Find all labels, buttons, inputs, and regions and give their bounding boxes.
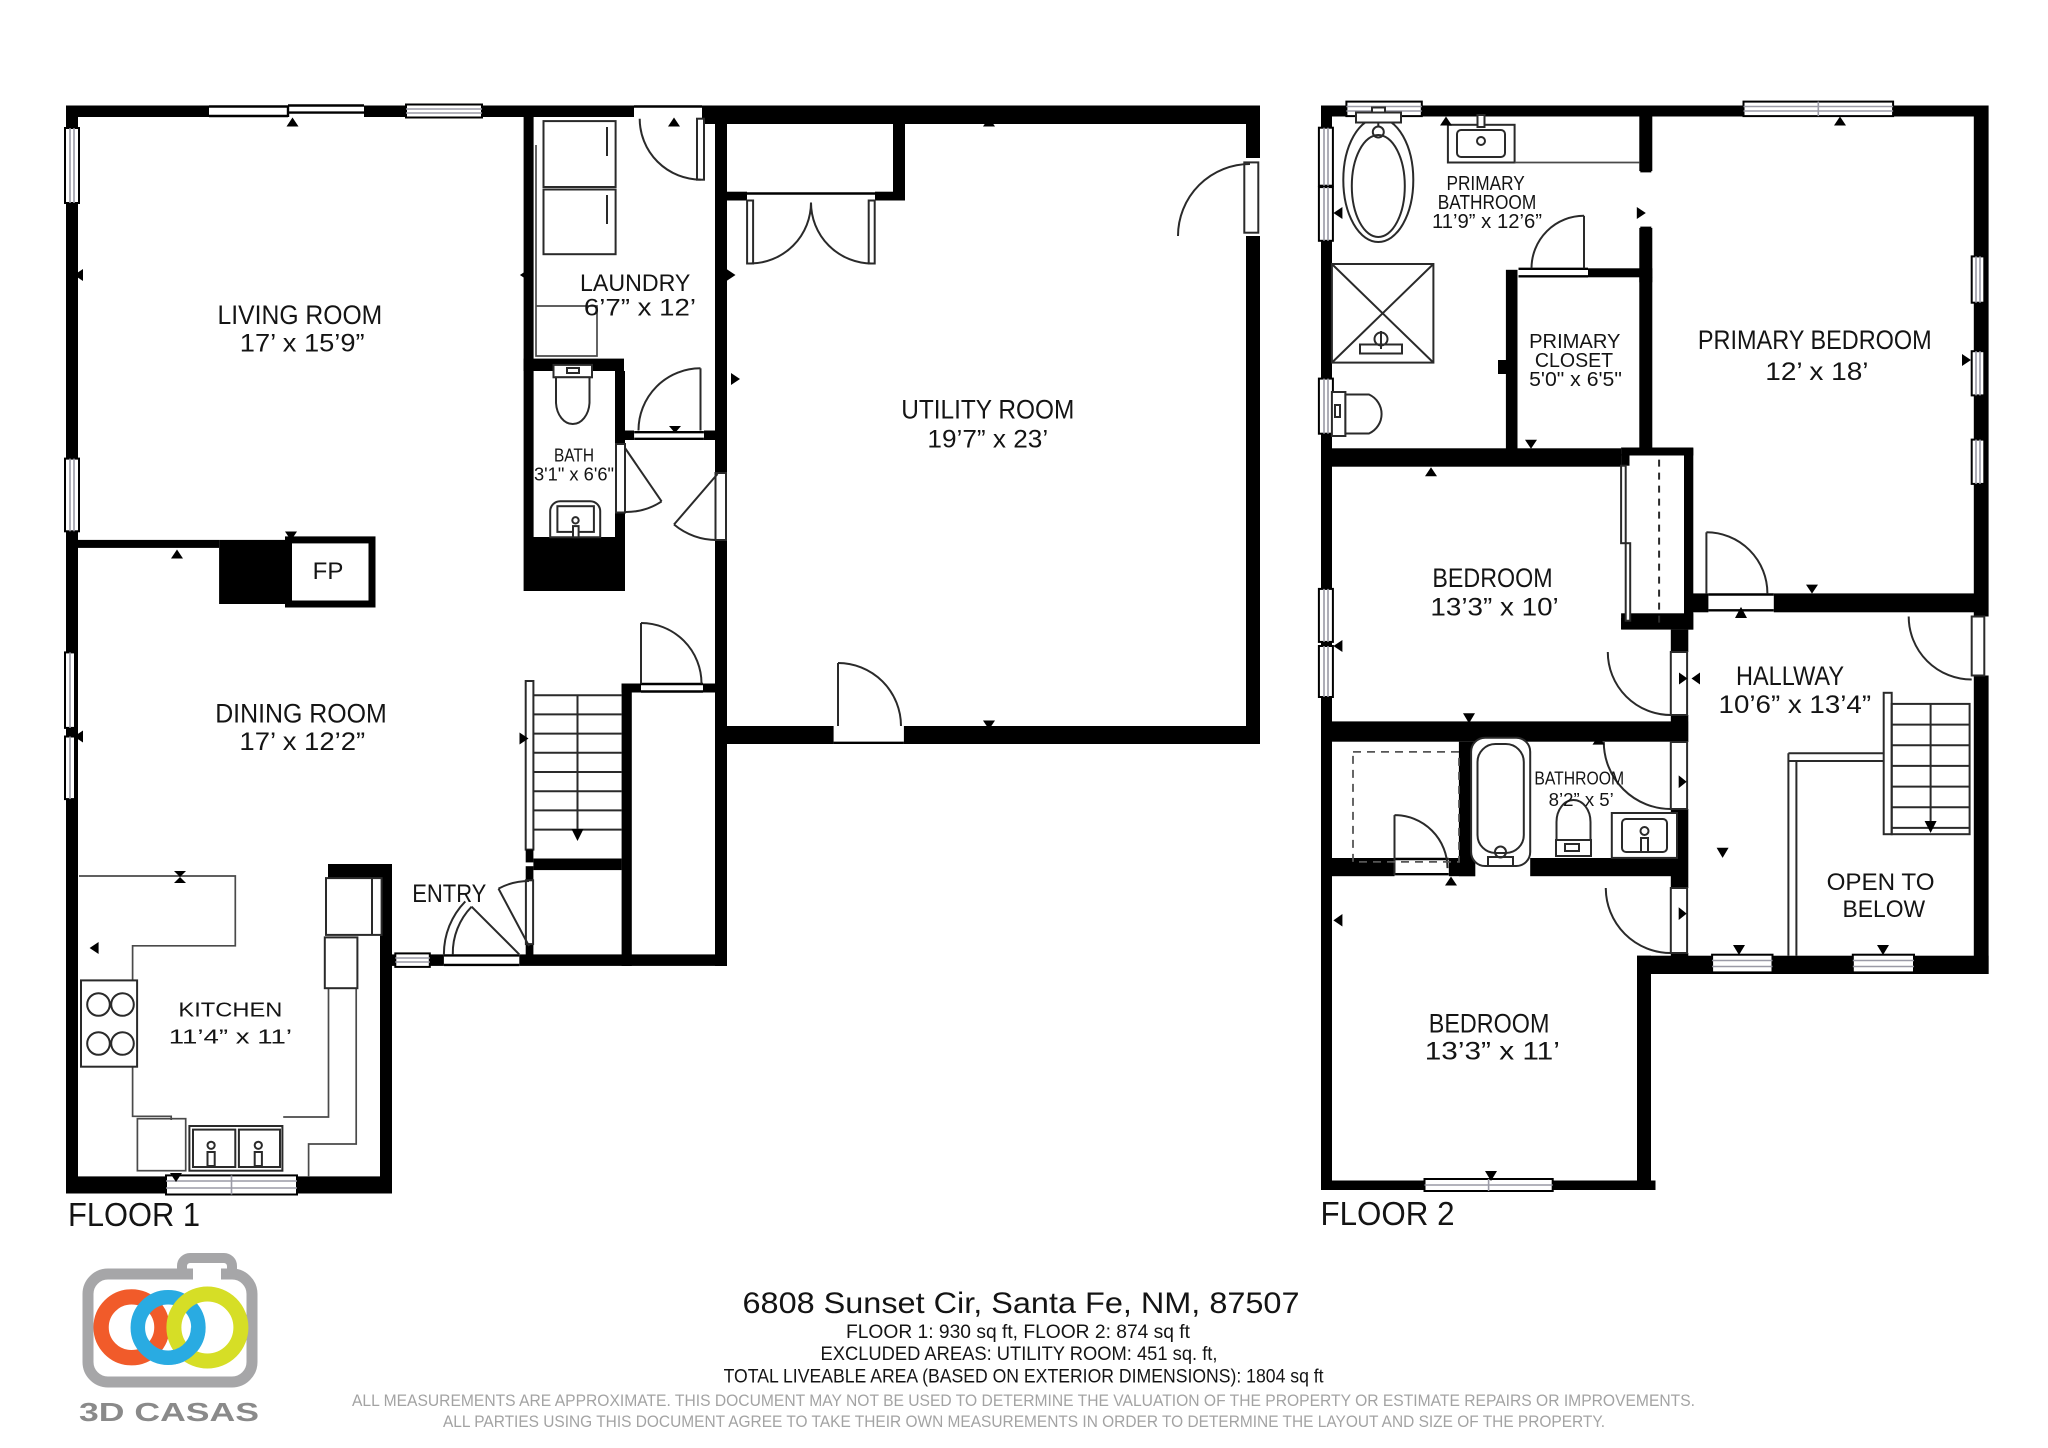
- svg-text:PRIMARY BEDROOM: PRIMARY BEDROOM: [1698, 325, 1932, 355]
- svg-text:FLOOR 1: FLOOR 1: [68, 1196, 200, 1233]
- svg-text:13’3” x 11’: 13’3” x 11’: [1425, 1037, 1560, 1065]
- svg-text:10’6” x 13’4”: 10’6” x 13’4”: [1719, 691, 1872, 719]
- svg-text:12’ x 18’: 12’ x 18’: [1765, 358, 1868, 386]
- svg-text:13’3” x 10’: 13’3” x 10’: [1430, 593, 1558, 621]
- svg-text:17’ x 12’2”: 17’ x 12’2”: [239, 728, 365, 756]
- svg-text:BELOW: BELOW: [1842, 896, 1925, 923]
- svg-text:EXCLUDED AREAS: UTILITY ROOM:: EXCLUDED AREAS: UTILITY ROOM: 451 sq. ft…: [821, 1344, 1218, 1365]
- svg-text:FLOOR 2: FLOOR 2: [1321, 1195, 1455, 1232]
- svg-text:3'1" x 6'6": 3'1" x 6'6": [534, 465, 614, 485]
- svg-text:8’2” x 5’: 8’2” x 5’: [1549, 790, 1614, 810]
- svg-text:BATHROOM: BATHROOM: [1534, 769, 1624, 789]
- svg-text:TOTAL LIVEABLE AREA (BASED ON: TOTAL LIVEABLE AREA (BASED ON EXTERIOR D…: [724, 1367, 1325, 1388]
- svg-text:ALL MEASUREMENTS ARE APPROXIMA: ALL MEASUREMENTS ARE APPROXIMATE. THIS D…: [352, 1391, 1695, 1410]
- svg-text:LAUNDRY: LAUNDRY: [580, 270, 690, 297]
- svg-text:ENTRY: ENTRY: [412, 880, 486, 908]
- svg-text:6808 Sunset Cir, Santa Fe, NM,: 6808 Sunset Cir, Santa Fe, NM, 87507: [743, 1287, 1300, 1320]
- svg-text:UTILITY ROOM: UTILITY ROOM: [901, 395, 1074, 425]
- svg-text:3D CASAS: 3D CASAS: [79, 1397, 259, 1427]
- svg-text:BEDROOM: BEDROOM: [1429, 1009, 1550, 1039]
- svg-text:19’7” x 23’: 19’7” x 23’: [927, 425, 1048, 453]
- svg-text:6’7” x 12’: 6’7” x 12’: [584, 294, 696, 321]
- svg-text:FLOOR 1: 930 sq ft, FLOOR 2: 8: FLOOR 1: 930 sq ft, FLOOR 2: 874 sq ft: [846, 1322, 1191, 1343]
- svg-text:BATH: BATH: [554, 446, 594, 466]
- svg-text:ALL PARTIES USING THIS DOCUMEN: ALL PARTIES USING THIS DOCUMENT AGREE TO…: [443, 1412, 1605, 1431]
- svg-text:BEDROOM: BEDROOM: [1432, 563, 1552, 593]
- svg-text:DINING ROOM: DINING ROOM: [215, 699, 387, 729]
- svg-text:11’4” x 11’: 11’4” x 11’: [169, 1026, 292, 1048]
- svg-text:5'0" x 6'5": 5'0" x 6'5": [1529, 369, 1622, 391]
- svg-text:FP: FP: [313, 558, 344, 585]
- svg-text:11’9” x 12’6”: 11’9” x 12’6”: [1432, 211, 1542, 233]
- svg-text:HALLWAY: HALLWAY: [1736, 661, 1844, 691]
- svg-text:KITCHEN: KITCHEN: [178, 1000, 282, 1022]
- svg-text:LIVING ROOM: LIVING ROOM: [218, 300, 383, 330]
- svg-text:OPEN TO: OPEN TO: [1827, 869, 1935, 896]
- svg-text:17’ x 15’9”: 17’ x 15’9”: [240, 330, 365, 358]
